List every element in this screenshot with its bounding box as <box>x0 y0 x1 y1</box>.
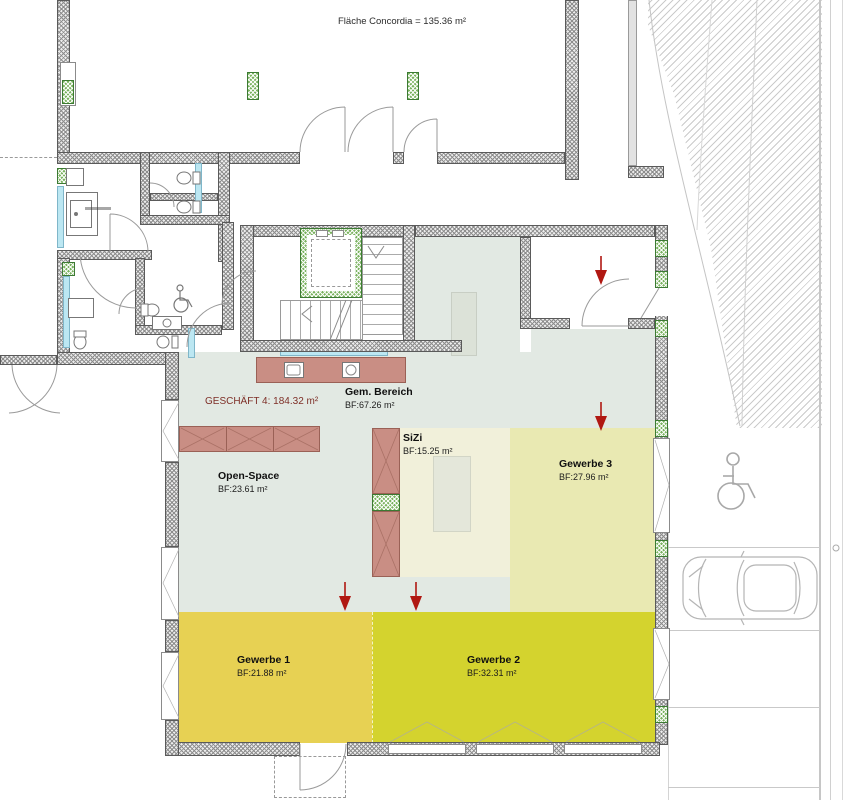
wall <box>140 215 230 225</box>
kerb-line <box>819 0 821 800</box>
room-label-gewerbe3: Gewerbe 3 BF:27.96 m² <box>559 458 612 482</box>
illegible-room-label <box>85 207 111 210</box>
wall <box>150 193 218 201</box>
wall <box>0 355 57 365</box>
wall <box>165 742 300 756</box>
wheelchair-icon-parking <box>718 453 755 509</box>
wall <box>565 0 579 180</box>
parking-divider <box>668 547 820 548</box>
wall-opening <box>655 288 668 316</box>
sink <box>152 316 182 330</box>
facade-column <box>655 420 668 437</box>
wall <box>240 225 254 352</box>
area-gem-under-sizi <box>372 577 510 615</box>
room-label-gewerbe2: Gewerbe 2 BF:32.31 m² <box>467 654 520 678</box>
wall <box>628 166 664 178</box>
cabinet-divider <box>226 426 227 452</box>
room-name: Gewerbe 2 <box>467 654 520 666</box>
geschaeft-label: GESCHÄFT 4: 184.32 m² <box>205 396 318 407</box>
boundary-line <box>842 0 843 800</box>
room-area: BF:67.26 m² <box>345 400 413 410</box>
parking-divider <box>668 630 820 631</box>
wall <box>240 340 462 352</box>
wall <box>222 222 234 330</box>
lift-door <box>316 230 328 237</box>
wall <box>393 152 404 164</box>
stair-flight <box>280 300 363 340</box>
kitchen-counter <box>256 357 406 383</box>
partition-column <box>372 494 400 511</box>
column <box>62 80 74 104</box>
wall <box>415 225 655 237</box>
facade-column <box>655 320 668 337</box>
area-gem-bereich-main <box>179 352 655 428</box>
glass-panel <box>195 163 202 213</box>
kerb-line <box>830 0 831 800</box>
wall <box>403 225 415 352</box>
room-name: Open-Space <box>218 470 279 482</box>
wall <box>165 720 179 756</box>
counter-sink <box>284 362 304 378</box>
area-open-space <box>179 428 372 615</box>
wheelchair-icon <box>174 285 192 312</box>
room-area: BF:23.61 m² <box>218 484 279 494</box>
facade-column <box>655 706 668 723</box>
glass-panel <box>188 328 195 358</box>
cabinet-row <box>179 426 320 452</box>
column <box>62 262 75 276</box>
glass-panel <box>57 186 64 248</box>
room-name: Gem. Bereich <box>345 386 413 398</box>
window <box>161 400 179 462</box>
parking-divider <box>668 707 820 708</box>
wall <box>135 258 145 333</box>
wall <box>520 237 531 329</box>
window <box>476 744 554 754</box>
room-label-open-space: Open-Space BF:23.61 m² <box>218 470 279 494</box>
sink <box>68 298 94 318</box>
window <box>564 744 642 754</box>
window <box>161 547 179 620</box>
stair-flight <box>362 237 403 335</box>
room-area: BF:21.88 m² <box>237 668 290 678</box>
area-gewerbe3 <box>510 428 655 615</box>
room-area: BF:32.31 m² <box>467 668 520 678</box>
facade-column <box>655 540 668 557</box>
room-name: Gewerbe 3 <box>559 458 612 470</box>
lift-door <box>332 230 344 237</box>
room-label-gewerbe1: Gewerbe 1 BF:21.88 m² <box>237 654 290 678</box>
floor-plan: Fläche Concordia = 135.36 m² GESCHÄFT 4:… <box>0 0 864 800</box>
column <box>247 72 259 100</box>
wall <box>57 352 179 365</box>
room-name: Gewerbe 1 <box>237 654 290 666</box>
window <box>653 438 670 533</box>
wall <box>520 318 570 329</box>
room-label-gem-bereich: Gem. Bereich BF:67.26 m² <box>345 386 413 410</box>
partition-wall <box>372 428 400 494</box>
table <box>434 457 470 531</box>
wall <box>628 0 637 166</box>
wall <box>165 620 179 652</box>
wall <box>165 352 179 400</box>
concordia-label: Fläche Concordia = 135.36 m² <box>338 16 466 27</box>
wall <box>628 318 655 329</box>
lift-cabin-outline <box>311 239 351 287</box>
wall <box>57 152 300 164</box>
window <box>161 652 179 720</box>
appliance <box>66 168 84 186</box>
reference-line <box>0 157 57 158</box>
window <box>653 628 670 700</box>
partition-wall <box>372 511 400 577</box>
room-area: BF:27.96 m² <box>559 472 612 482</box>
cabinet-divider <box>273 426 274 452</box>
wall <box>165 462 179 547</box>
column <box>407 72 419 100</box>
room-name: SiZi <box>403 432 453 444</box>
sink <box>70 200 92 228</box>
wall <box>437 152 565 164</box>
window <box>388 744 466 754</box>
room-label-sizi: SiZi BF:15.25 m² <box>403 432 453 456</box>
facade-column <box>655 240 668 257</box>
survey-marker <box>833 545 839 551</box>
facade-column <box>655 271 668 288</box>
vestibule-outline <box>274 756 346 798</box>
car-icon <box>683 551 817 625</box>
counter-basin <box>342 362 360 378</box>
room-area: BF:15.25 m² <box>403 446 453 456</box>
parking-divider <box>668 787 820 788</box>
